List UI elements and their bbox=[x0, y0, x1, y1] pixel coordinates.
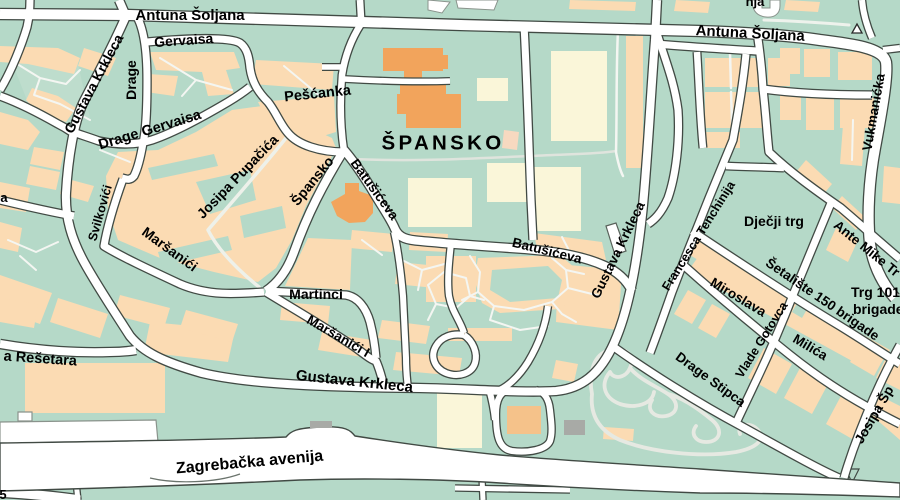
svg-text:nja: nja bbox=[746, 0, 766, 9]
svg-text:Trg 101: Trg 101 bbox=[851, 284, 900, 300]
svg-text:Drage: Drage bbox=[123, 60, 139, 100]
svg-text:5: 5 bbox=[0, 487, 7, 500]
svg-text:brigade: brigade bbox=[853, 301, 900, 317]
svg-text:Dječji trg: Dječji trg bbox=[744, 213, 804, 229]
svg-text:ŠPANSKO: ŠPANSKO bbox=[382, 131, 505, 155]
svg-text:a: a bbox=[0, 190, 8, 205]
svg-text:Martinci: Martinci bbox=[289, 286, 343, 302]
svg-text:Antuna Šoljana: Antuna Šoljana bbox=[135, 6, 245, 24]
